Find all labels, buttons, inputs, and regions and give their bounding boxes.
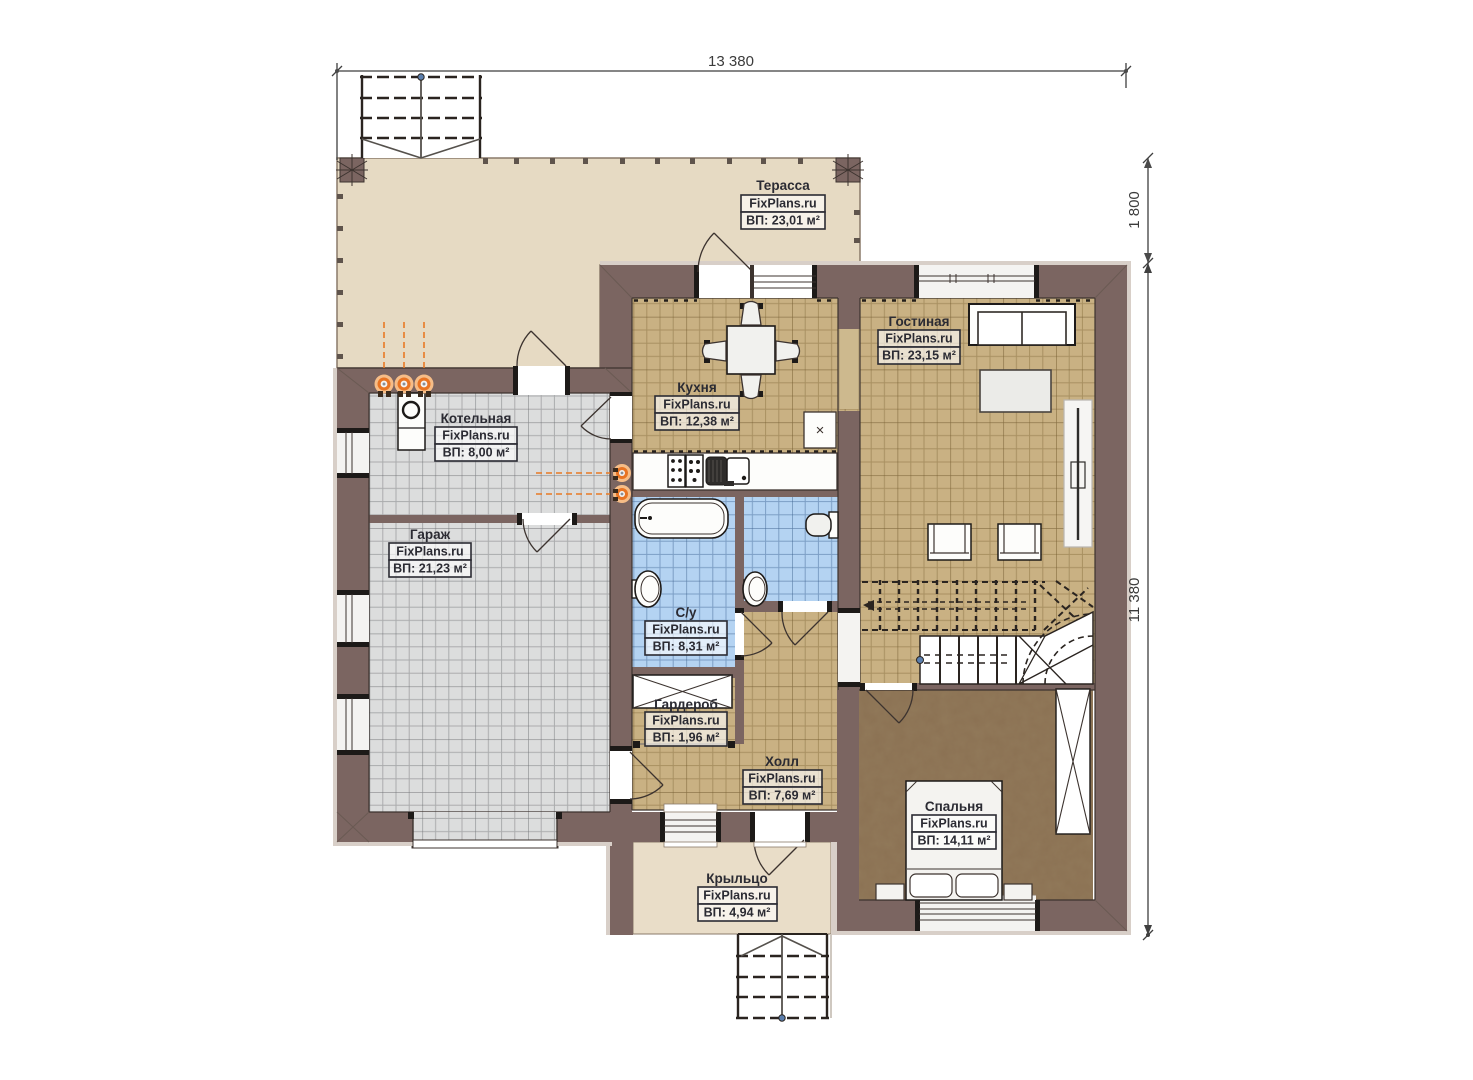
svg-text:FixPlans.ru: FixPlans.ru (396, 545, 463, 559)
svg-text:ВП: 1,96 м²: ВП: 1,96 м² (653, 731, 720, 745)
svg-text:ВП: 21,23 м²: ВП: 21,23 м² (393, 562, 467, 576)
svg-text:FixPlans.ru: FixPlans.ru (748, 772, 815, 786)
svg-text:×: × (816, 422, 825, 439)
svg-text:Спальня: Спальня (925, 799, 983, 814)
svg-text:Крыльцо: Крыльцо (706, 871, 767, 886)
svg-text:FixPlans.ru: FixPlans.ru (703, 889, 770, 903)
svg-text:ВП: 23,15 м²: ВП: 23,15 м² (882, 349, 956, 363)
svg-text:FixPlans.ru: FixPlans.ru (920, 817, 987, 831)
svg-text:ВП: 4,94 м²: ВП: 4,94 м² (704, 906, 771, 920)
svg-text:1 800: 1 800 (1126, 191, 1143, 229)
svg-text:Кухня: Кухня (677, 380, 716, 395)
svg-text:ВП: 8,00 м²: ВП: 8,00 м² (443, 446, 510, 460)
svg-text:FixPlans.ru: FixPlans.ru (663, 398, 730, 412)
svg-text:FixPlans.ru: FixPlans.ru (652, 714, 719, 728)
svg-text:ВП: 8,31 м²: ВП: 8,31 м² (653, 640, 720, 654)
svg-text:Гостиная: Гостиная (888, 314, 949, 329)
svg-text:FixPlans.ru: FixPlans.ru (442, 429, 509, 443)
svg-text:FixPlans.ru: FixPlans.ru (652, 623, 719, 637)
svg-text:FixPlans.ru: FixPlans.ru (885, 332, 952, 346)
svg-text:11 380: 11 380 (1126, 578, 1143, 623)
svg-text:Холл: Холл (765, 754, 799, 769)
svg-text:С/у: С/у (675, 605, 697, 620)
svg-text:13 380: 13 380 (708, 53, 754, 70)
svg-text:FixPlans.ru: FixPlans.ru (749, 197, 816, 211)
svg-text:Котельная: Котельная (441, 411, 512, 426)
svg-text:ВП: 23,01 м²: ВП: 23,01 м² (746, 214, 820, 228)
svg-text:Терасса: Терасса (756, 178, 810, 193)
svg-text:Гараж: Гараж (410, 527, 451, 542)
svg-text:Гардероб: Гардероб (654, 697, 718, 712)
svg-text:ВП: 14,11 м²: ВП: 14,11 м² (917, 834, 990, 848)
svg-text:ВП: 7,69 м²: ВП: 7,69 м² (749, 789, 816, 803)
svg-text:ВП: 12,38 м²: ВП: 12,38 м² (660, 415, 734, 429)
